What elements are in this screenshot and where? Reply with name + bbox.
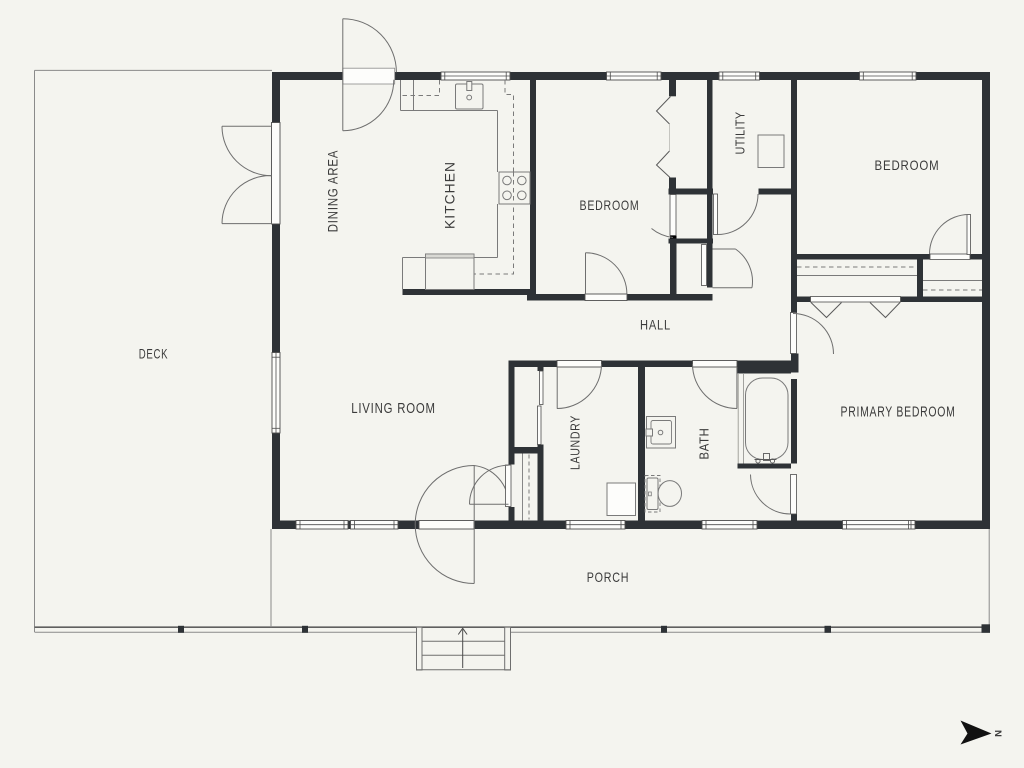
- svg-text:LIVING ROOM: LIVING ROOM: [351, 401, 436, 417]
- svg-text:DECK: DECK: [139, 346, 169, 362]
- svg-text:N: N: [992, 730, 1003, 737]
- svg-text:BEDROOM: BEDROOM: [875, 157, 940, 173]
- svg-text:UTILITY: UTILITY: [733, 112, 748, 155]
- svg-text:PORCH: PORCH: [587, 569, 630, 585]
- svg-text:BATH: BATH: [697, 428, 712, 460]
- svg-text:LAUNDRY: LAUNDRY: [568, 415, 583, 470]
- svg-text:KITCHEN: KITCHEN: [443, 161, 458, 229]
- svg-text:DINING AREA: DINING AREA: [326, 150, 341, 233]
- svg-text:PRIMARY BEDROOM: PRIMARY BEDROOM: [841, 405, 956, 421]
- svg-text:HALL: HALL: [640, 317, 671, 333]
- svg-text:BEDROOM: BEDROOM: [580, 197, 640, 213]
